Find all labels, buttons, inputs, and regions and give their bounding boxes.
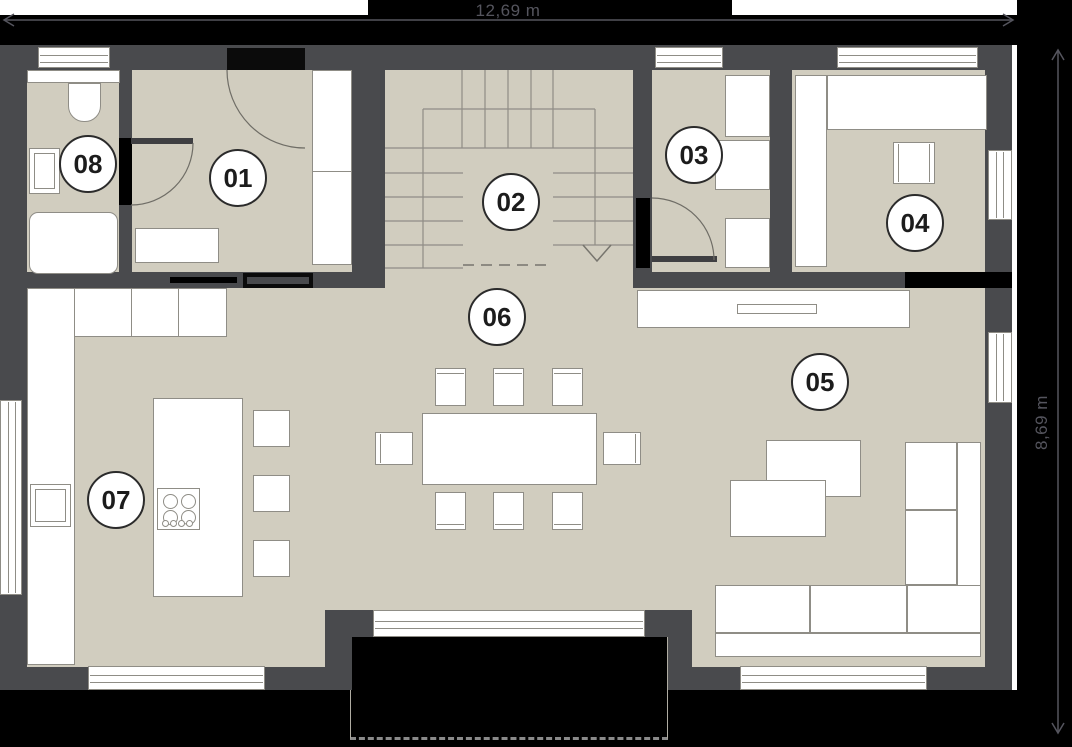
room-number: 07 — [102, 485, 131, 516]
room-number: 01 — [224, 163, 253, 194]
room-number: 02 — [497, 187, 526, 218]
stair-direction-arrow — [583, 245, 611, 261]
room-label-03: 03 — [665, 126, 723, 184]
room-label-02: 02 — [482, 173, 540, 231]
stair-treads — [385, 70, 633, 268]
floor-plan-canvas: 01 02 03 04 05 06 07 08 12,69 m 8,69 m — [0, 0, 1072, 747]
room-label-05: 05 — [791, 353, 849, 411]
room-label-01: 01 — [209, 149, 267, 207]
room-number: 04 — [901, 208, 930, 239]
width-dimension-label: 12,69 m — [408, 1, 608, 21]
room-label-06: 06 — [468, 288, 526, 346]
room-label-08: 08 — [59, 135, 117, 193]
room-label-04: 04 — [886, 194, 944, 252]
room-number: 06 — [483, 302, 512, 333]
room-number: 03 — [680, 140, 709, 171]
height-dimension-label: 8,69 m — [1032, 340, 1052, 450]
linework-overlay — [0, 0, 1072, 747]
dimension-lines — [4, 14, 1064, 733]
room-label-07: 07 — [87, 471, 145, 529]
room-number: 08 — [74, 149, 103, 180]
room-number: 05 — [806, 367, 835, 398]
